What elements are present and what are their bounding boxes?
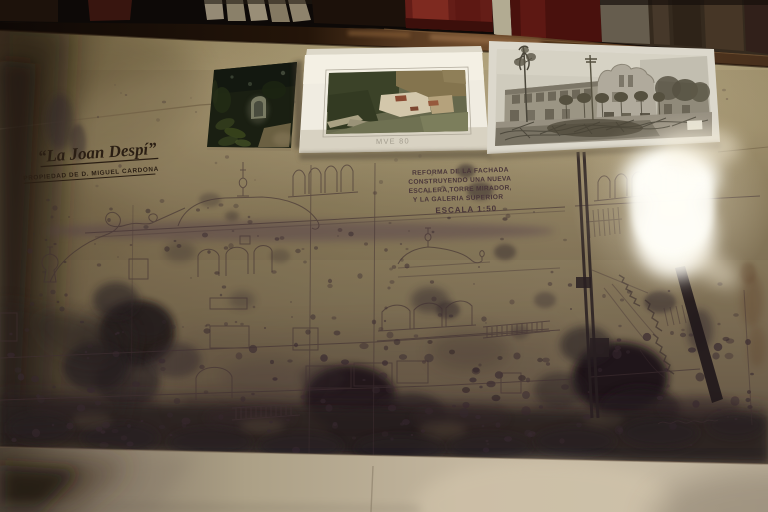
- svg-text:MVE 80: MVE 80: [376, 136, 410, 146]
